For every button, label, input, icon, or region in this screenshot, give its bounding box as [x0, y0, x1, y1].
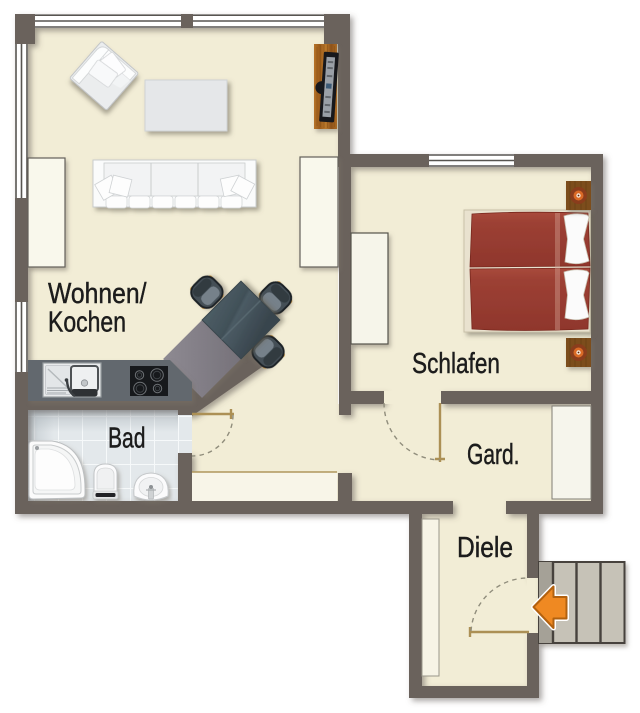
- svg-text:Gard.: Gard.: [467, 439, 520, 471]
- svg-text:Diele: Diele: [457, 532, 513, 564]
- svg-text:Wohnen/: Wohnen/: [48, 278, 147, 310]
- svg-text:Schlafen: Schlafen: [412, 348, 500, 380]
- svg-text:Bad: Bad: [108, 423, 146, 455]
- svg-text:Kochen: Kochen: [48, 307, 126, 339]
